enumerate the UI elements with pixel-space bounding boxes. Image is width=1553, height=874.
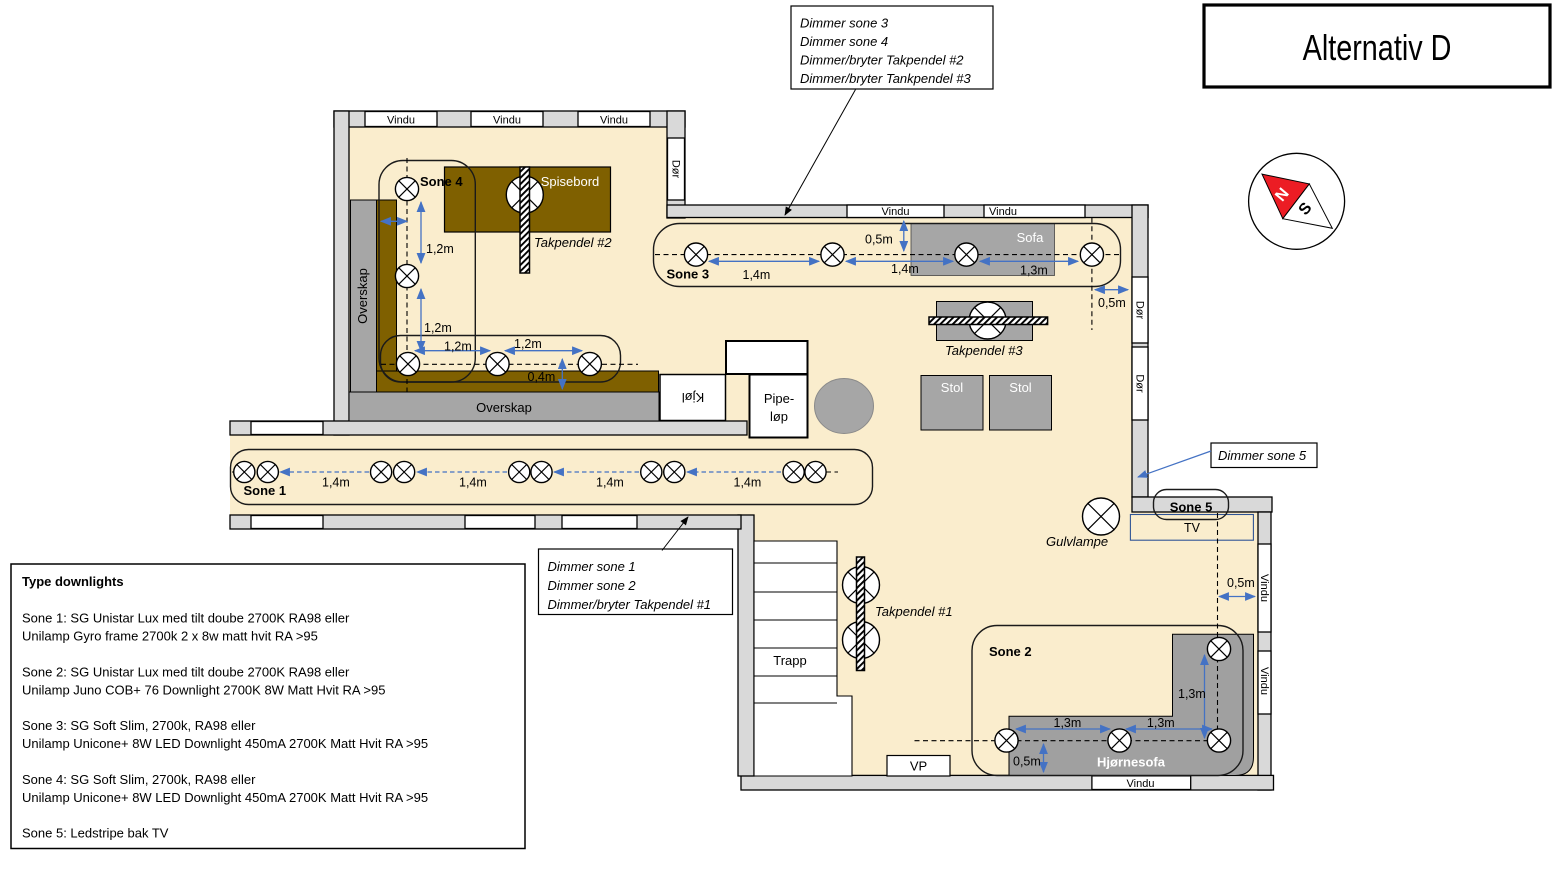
svg-text:Dimmer sone 4: Dimmer sone 4 [800, 34, 888, 49]
svg-text:Gulvlampe: Gulvlampe [1046, 534, 1108, 549]
svg-text:Dimmer/bryter Tankpendel #3: Dimmer/bryter Tankpendel #3 [800, 71, 972, 86]
svg-text:Sone 1: Sone 1 [244, 483, 287, 498]
svg-text:Vindu: Vindu [387, 115, 415, 127]
svg-text:1,4m: 1,4m [891, 262, 919, 276]
svg-text:1,4m: 1,4m [734, 476, 762, 490]
svg-text:Unilamp Juno COB+ 76 Downlight: Unilamp Juno COB+ 76 Downlight 2700K 8W … [22, 683, 385, 698]
svg-text:Dimmer/bryter Takpendel #2: Dimmer/bryter Takpendel #2 [800, 53, 964, 68]
svg-text:Vindu: Vindu [600, 115, 628, 127]
svg-text:Vindu: Vindu [1258, 667, 1270, 695]
svg-text:1,4m: 1,4m [322, 476, 350, 490]
svg-text:Sone 4: Sone 4 [420, 174, 463, 189]
svg-text:1,3m: 1,3m [1178, 687, 1206, 701]
svg-text:Unilamp Unicone+ 8W LED Downli: Unilamp Unicone+ 8W LED Downlight 450mA … [22, 736, 428, 751]
svg-text:0,5m: 0,5m [1098, 296, 1126, 310]
svg-text:Kjøl: Kjøl [682, 390, 705, 405]
svg-text:1,4m: 1,4m [596, 476, 624, 490]
svg-text:Dør: Dør [1134, 301, 1146, 320]
svg-text:Alternativ D: Alternativ D [1303, 27, 1452, 68]
svg-text:Hjørnesofa: Hjørnesofa [1097, 755, 1166, 770]
svg-text:Sone 1: SG Unistar Lux med til: Sone 1: SG Unistar Lux med tilt doube 27… [22, 611, 350, 626]
svg-text:0,5m: 0,5m [1227, 576, 1255, 590]
svg-text:Overskap: Overskap [476, 400, 532, 415]
svg-text:Spisebord: Spisebord [541, 174, 600, 189]
svg-text:Dimmer sone 2: Dimmer sone 2 [548, 578, 637, 593]
svg-text:Unilamp Unicone+ 8W LED Downli: Unilamp Unicone+ 8W LED Downlight 450mA … [22, 790, 428, 805]
svg-text:1,4m: 1,4m [743, 268, 771, 282]
svg-text:Takpendel #3: Takpendel #3 [945, 343, 1023, 358]
svg-text:Takpendel #2: Takpendel #2 [534, 235, 612, 250]
svg-text:1,3m: 1,3m [1020, 264, 1048, 278]
svg-text:0,4m: 0,4m [528, 370, 556, 384]
svg-text:VP: VP [910, 759, 927, 774]
svg-text:Vindu: Vindu [882, 206, 910, 218]
svg-text:1,4m: 1,4m [459, 476, 487, 490]
svg-text:Dør: Dør [670, 160, 682, 179]
svg-text:Sone 2: SG Unistar Lux med til: Sone 2: SG Unistar Lux med tilt doube 27… [22, 664, 350, 679]
svg-text:Sone 5: Sone 5 [1170, 500, 1213, 515]
svg-text:Vindu: Vindu [989, 206, 1017, 218]
svg-text:Dimmer sone 1: Dimmer sone 1 [548, 559, 636, 574]
svg-text:1,2m: 1,2m [426, 242, 454, 256]
svg-text:Sone 3: Sone 3 [667, 267, 710, 282]
svg-text:Type downlights: Type downlights [22, 574, 124, 589]
svg-text:1,2m: 1,2m [514, 337, 542, 351]
svg-text:Dør: Dør [1134, 374, 1146, 393]
svg-text:Sofa: Sofa [1017, 230, 1045, 245]
svg-text:Sone 5: Ledstripe bak TV: Sone 5: Ledstripe bak TV [22, 826, 169, 841]
svg-text:0,5m: 0,5m [865, 233, 893, 247]
svg-text:Vindu: Vindu [1258, 574, 1270, 602]
svg-text:Sone 4: SG Soft Slim, 2700k, R: Sone 4: SG Soft Slim, 2700k, RA98 eller [22, 772, 256, 787]
svg-text:1,3m: 1,3m [1147, 716, 1175, 730]
svg-text:0,5m: 0,5m [1013, 755, 1041, 769]
svg-text:Stol: Stol [1009, 380, 1032, 395]
svg-text:1,2m: 1,2m [424, 321, 452, 335]
svg-text:Pipe-: Pipe- [764, 391, 794, 406]
svg-text:Unilamp Gyro frame 2700k 2 x 8: Unilamp Gyro frame 2700k 2 x 8w matt hvi… [22, 629, 318, 644]
svg-text:Takpendel #1: Takpendel #1 [875, 604, 953, 619]
svg-text:Dimmer sone 5: Dimmer sone 5 [1218, 448, 1307, 463]
svg-text:Trapp: Trapp [773, 653, 806, 668]
svg-text:Dimmer sone 3: Dimmer sone 3 [800, 16, 889, 31]
svg-text:1,2m: 1,2m [444, 340, 472, 354]
svg-text:TV: TV [1184, 521, 1201, 535]
svg-text:Stol: Stol [941, 380, 964, 395]
svg-text:Sone 3: SG Soft Slim, 2700k, R: Sone 3: SG Soft Slim, 2700k, RA98 eller [22, 718, 256, 733]
svg-text:Vindu: Vindu [1127, 778, 1155, 790]
svg-text:Sone 2: Sone 2 [989, 644, 1032, 659]
svg-text:Vindu: Vindu [493, 115, 521, 127]
svg-text:løp: løp [770, 409, 788, 424]
svg-text:Dimmer/bryter Takpendel #1: Dimmer/bryter Takpendel #1 [548, 597, 712, 612]
svg-text:Overskap: Overskap [355, 268, 370, 324]
svg-text:1,3m: 1,3m [1054, 716, 1082, 730]
